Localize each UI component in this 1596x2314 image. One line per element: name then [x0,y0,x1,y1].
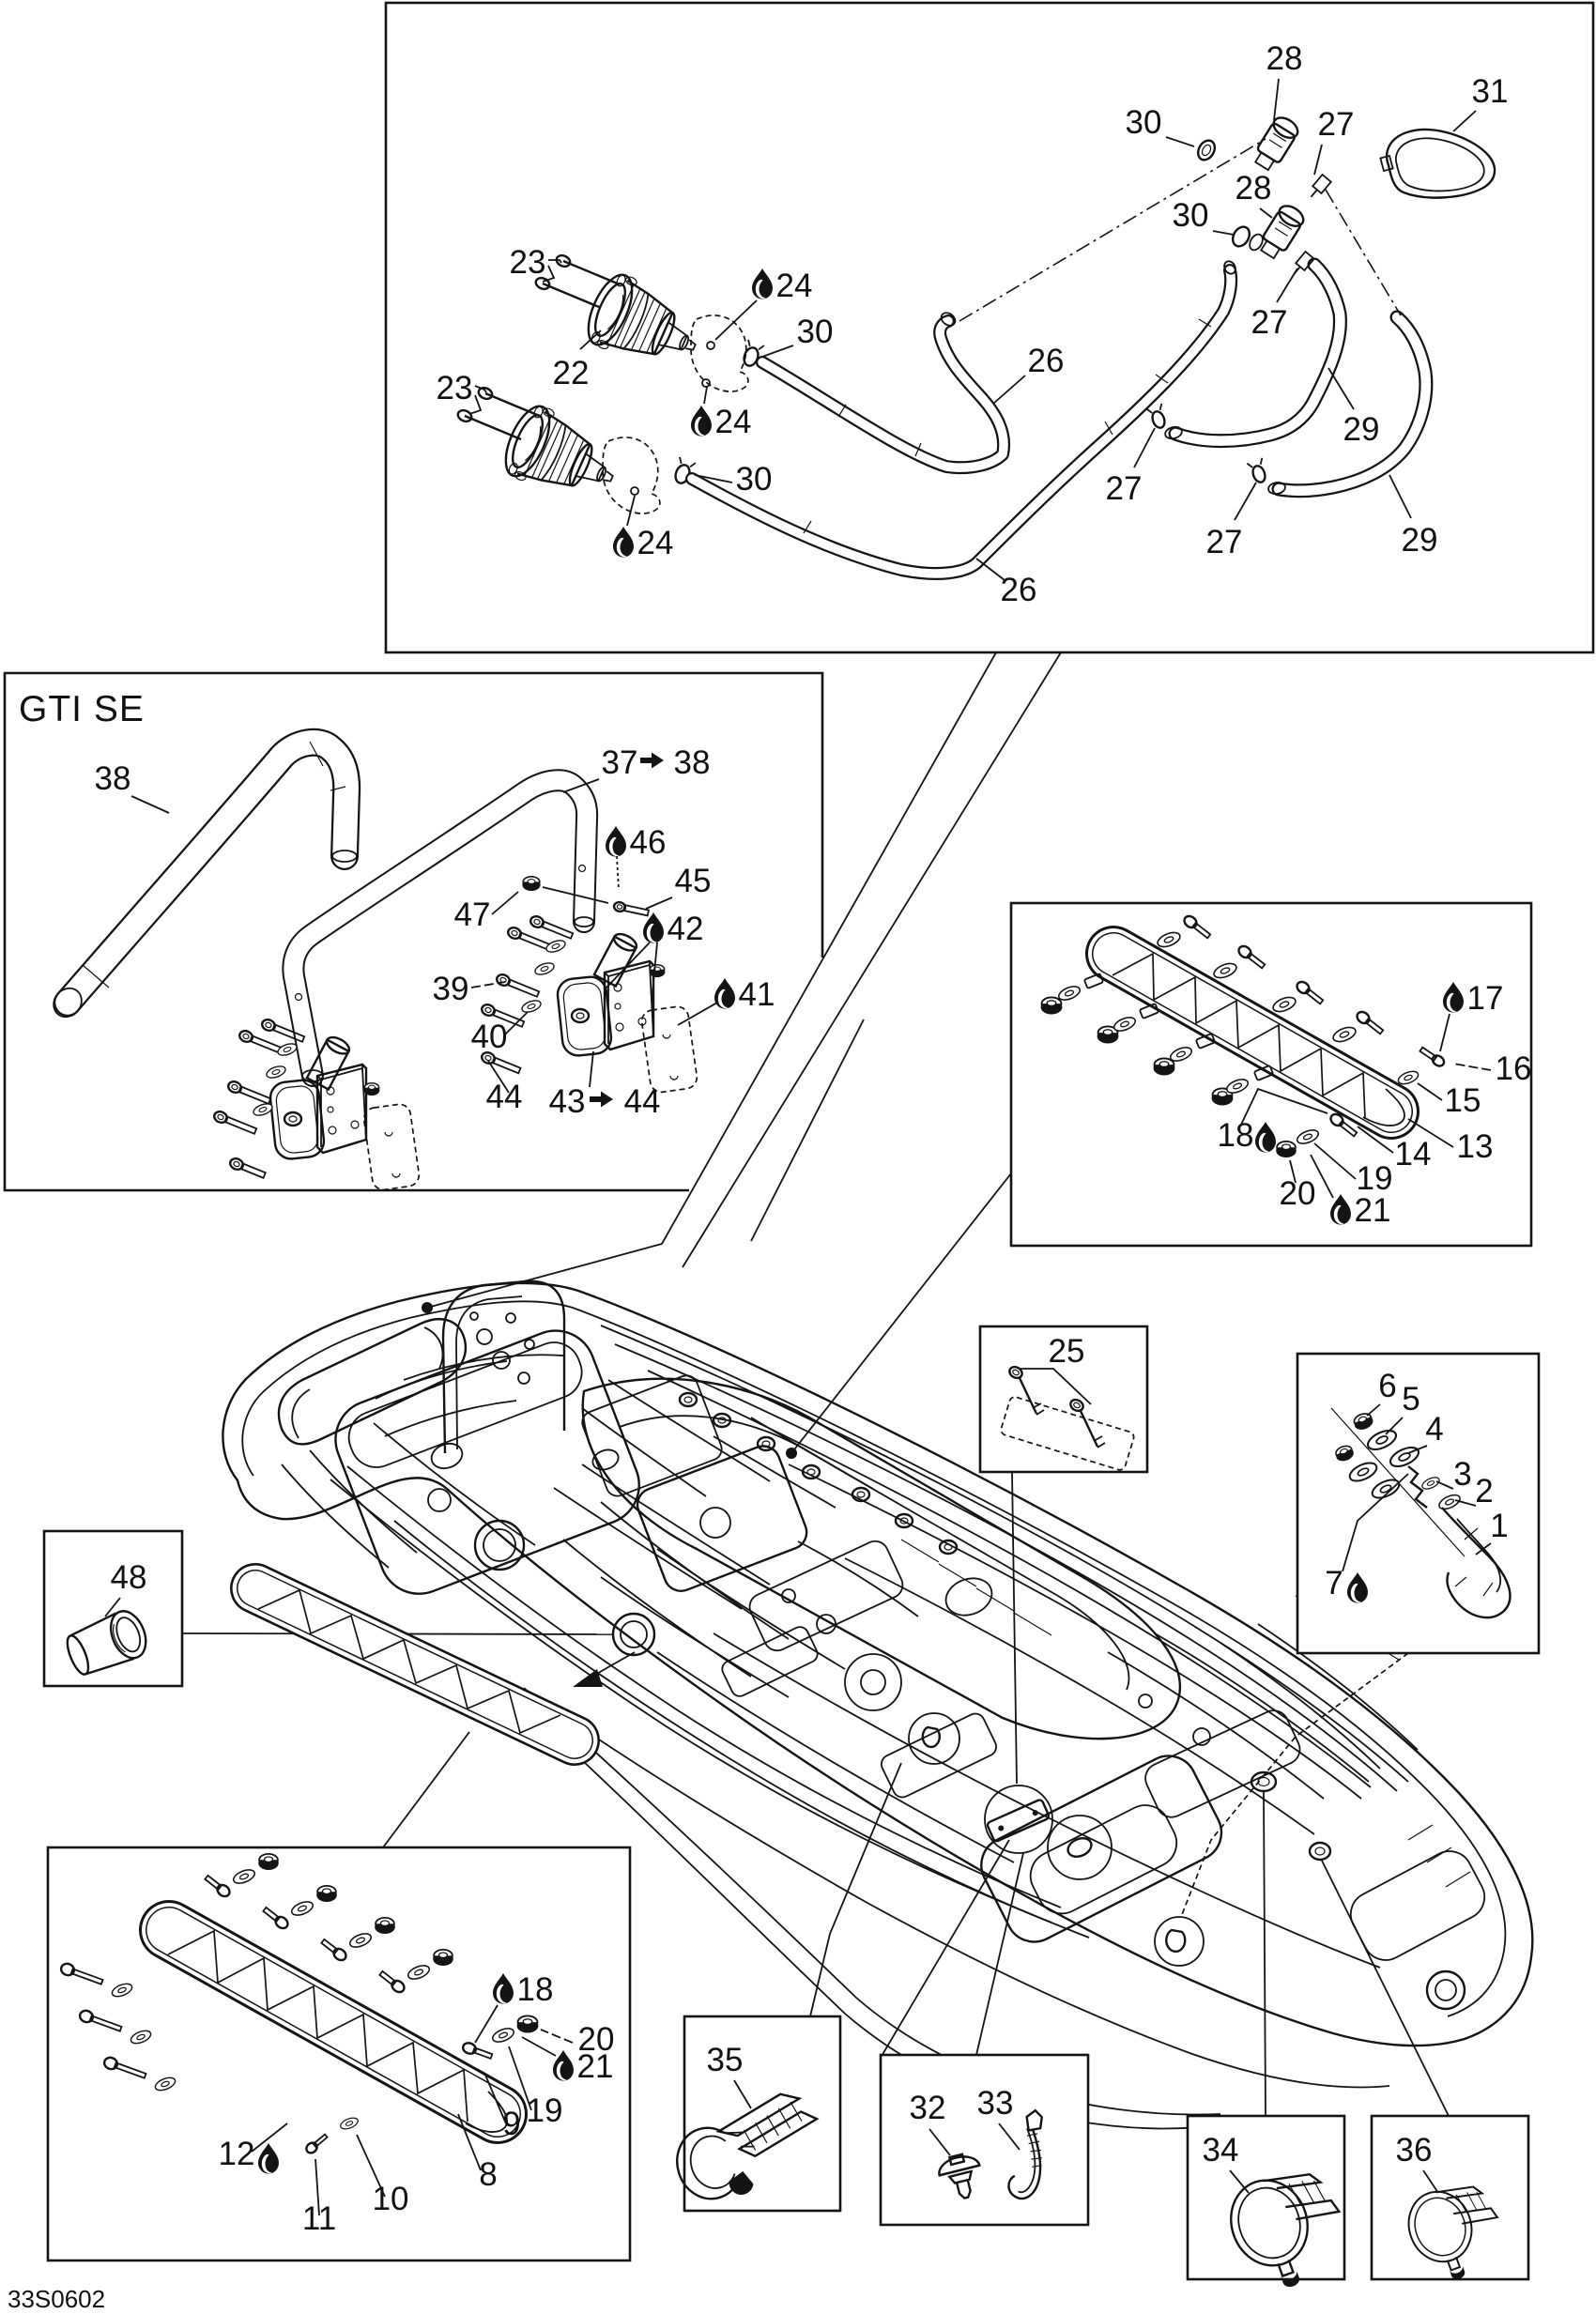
svg-text:23: 23 [437,370,473,406]
svg-text:38: 38 [95,760,131,797]
svg-text:40: 40 [471,1019,508,1055]
svg-text:34: 34 [1203,2132,1239,2168]
svg-text:29: 29 [1402,522,1438,559]
svg-text:28: 28 [1235,170,1272,207]
svg-text:7: 7 [1325,1565,1343,1601]
svg-text:48: 48 [111,1559,147,1596]
svg-text:43: 43 [549,1083,586,1120]
svg-text:24: 24 [637,525,674,561]
svg-text:16: 16 [1496,1050,1532,1087]
svg-text:27: 27 [1318,106,1355,143]
svg-text:27: 27 [1106,470,1143,507]
svg-text:26: 26 [1028,343,1065,379]
svg-text:22: 22 [553,355,590,391]
svg-text:27: 27 [1251,304,1288,341]
svg-text:18: 18 [517,1971,554,2008]
svg-text:24: 24 [715,404,752,440]
svg-text:21: 21 [577,2048,614,2085]
svg-text:GTI SE: GTI SE [19,689,145,729]
svg-text:21: 21 [1355,1192,1391,1229]
svg-text:23: 23 [510,244,546,281]
svg-text:30: 30 [736,461,773,498]
svg-text:32: 32 [910,2090,946,2126]
svg-text:5: 5 [1402,1381,1420,1418]
svg-text:26: 26 [1001,572,1037,608]
svg-text:36: 36 [1396,2132,1433,2168]
svg-text:33: 33 [977,2085,1014,2122]
svg-text:29: 29 [1343,411,1380,448]
svg-text:45: 45 [675,863,712,899]
svg-text:9: 9 [502,2106,520,2142]
svg-text:1: 1 [1490,1508,1508,1544]
svg-text:13: 13 [1457,1128,1494,1165]
svg-text:33S0602: 33S0602 [8,2285,105,2313]
svg-text:38: 38 [674,744,711,781]
svg-text:12: 12 [219,2136,255,2172]
svg-text:20: 20 [1280,1175,1316,1212]
svg-text:42: 42 [668,911,704,947]
svg-text:30: 30 [1173,197,1209,234]
svg-text:15: 15 [1445,1082,1481,1119]
svg-text:4: 4 [1425,1411,1443,1448]
svg-text:37: 37 [602,744,638,781]
svg-text:10: 10 [373,2181,409,2217]
svg-text:46: 46 [630,824,667,861]
svg-text:41: 41 [739,976,775,1013]
svg-text:35: 35 [707,2042,744,2078]
svg-text:18: 18 [1218,1117,1254,1154]
svg-text:25: 25 [1049,1333,1085,1370]
svg-text:47: 47 [454,896,491,933]
svg-text:30: 30 [1126,104,1162,141]
svg-text:17: 17 [1467,980,1504,1017]
svg-text:14: 14 [1395,1136,1432,1172]
svg-text:2: 2 [1475,1473,1493,1509]
svg-text:19: 19 [527,2092,563,2129]
svg-text:39: 39 [433,971,469,1007]
svg-text:24: 24 [776,268,813,304]
svg-text:28: 28 [1266,40,1303,77]
svg-text:31: 31 [1472,73,1509,110]
svg-text:44: 44 [624,1083,661,1120]
svg-text:30: 30 [797,314,834,350]
svg-text:8: 8 [479,2156,497,2193]
svg-text:3: 3 [1453,1456,1471,1493]
svg-text:27: 27 [1206,524,1243,560]
svg-text:6: 6 [1378,1368,1396,1404]
